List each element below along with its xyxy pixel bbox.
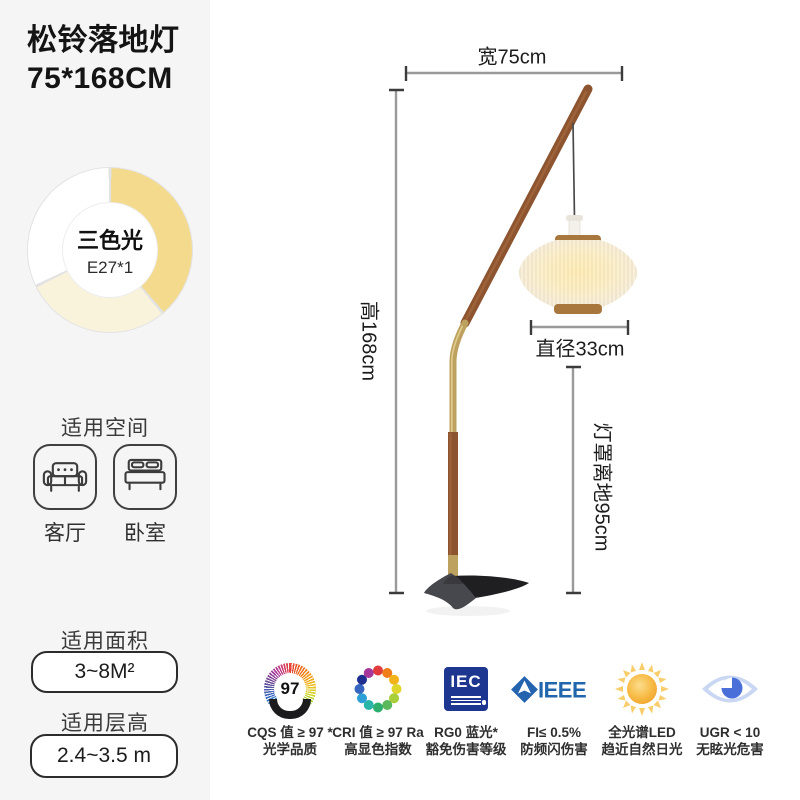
badge-line1: UGR < 10 — [700, 724, 760, 741]
floor-shadow — [426, 606, 510, 616]
section-heading-floor-height: 适用层高 — [0, 707, 210, 737]
badge-line2: 光学品质 — [263, 741, 317, 758]
light-color-donut-center: 三色光 E27*1 — [63, 203, 157, 297]
living-room-label: 客厅 — [33, 517, 97, 547]
iec-logo-text: IEC — [450, 673, 481, 691]
lamp-shade-assembly — [519, 123, 637, 314]
height-dimension-label: 高168cm — [357, 301, 386, 381]
badge-line1: FI≤ 0.5% — [527, 724, 581, 741]
badge-line1: 全光谱LED — [608, 724, 676, 741]
certification-badges-row: 97 CQS 值 ≥ 97 * 光学品质 — [246, 660, 776, 758]
badge-line1: CQS 值 ≥ 97 * — [247, 724, 332, 741]
badge-line2: 无眩光危害 — [696, 741, 764, 758]
badge-line2: 防频闪伤害 — [520, 741, 588, 758]
shade-pleats — [519, 240, 637, 309]
socket — [569, 220, 580, 237]
badge-line2: 高显色指数 — [344, 741, 412, 758]
badge-ugr: UGR < 10 无眩光危害 — [686, 660, 774, 758]
cqs-97-medal-icon: 97 — [264, 663, 316, 715]
ieee-logo-text: IEEE — [538, 678, 586, 703]
sofa-icon — [39, 451, 91, 503]
badge-iec: IEC RG0 蓝光* 豁免伤害等级 — [422, 660, 510, 758]
living-room-tile — [33, 444, 97, 510]
badge-line1: CRI 值 ≥ 97 Ra — [332, 724, 423, 741]
section-heading-space: 适用空间 — [0, 412, 210, 442]
bedroom-label: 卧室 — [113, 517, 177, 547]
bedroom-tile — [113, 444, 177, 510]
diameter-dimension-label: 直径33cm — [536, 333, 625, 362]
brass-elbow — [453, 323, 465, 434]
product-size: 75*168CM — [27, 60, 180, 98]
cord — [573, 123, 575, 219]
cqs-score: 97 — [274, 673, 306, 705]
bulb-spec-label: E27*1 — [87, 258, 133, 278]
badge-line2: 趋近自然日光 — [602, 741, 683, 758]
ieee-logo-icon: IEEE — [510, 667, 598, 711]
product-spec-infographic: 松铃落地灯 75*168CM 三色光 E27*1 适用空间 — [0, 0, 800, 800]
sun-icon — [614, 661, 670, 717]
light-color-donut: 三色光 E27*1 — [28, 168, 192, 332]
badge-cri: CRI 值 ≥ 97 Ra 高显色指数 — [334, 660, 422, 758]
sidebar: 松铃落地灯 75*168CM 三色光 E27*1 适用空间 — [0, 0, 210, 800]
area-value-pill: 3~8M² — [31, 651, 178, 693]
floor-height-value-pill: 2.4~3.5 m — [30, 734, 178, 778]
page-title: 松铃落地灯 75*168CM — [27, 22, 180, 98]
light-mode-label: 三色光 — [77, 223, 143, 255]
cri-color-wheel-icon — [353, 664, 403, 714]
badge-line1: RG0 蓝光* — [434, 724, 498, 741]
iec-logo-icon: IEC — [444, 667, 488, 711]
iec-logo-lines — [451, 694, 481, 705]
eye-icon — [700, 669, 760, 709]
width-dimension-label: 宽75cm — [478, 41, 547, 70]
badge-cqs: 97 CQS 值 ≥ 97 * 光学品质 — [246, 660, 334, 758]
badge-line2: 豁免伤害等级 — [426, 741, 507, 758]
badge-ieee: IEEE FI≤ 0.5% 防频闪伤害 — [510, 660, 598, 758]
bed-icon — [119, 451, 171, 503]
lamp-base — [424, 573, 529, 609]
badge-full-spectrum: 全光谱LED 趋近自然日光 — [598, 660, 686, 758]
shade-height-dimension-label: 灯罩离地95cm — [590, 423, 619, 552]
shade-bottom-cap — [554, 304, 602, 314]
product-name: 松铃落地灯 — [27, 22, 180, 60]
